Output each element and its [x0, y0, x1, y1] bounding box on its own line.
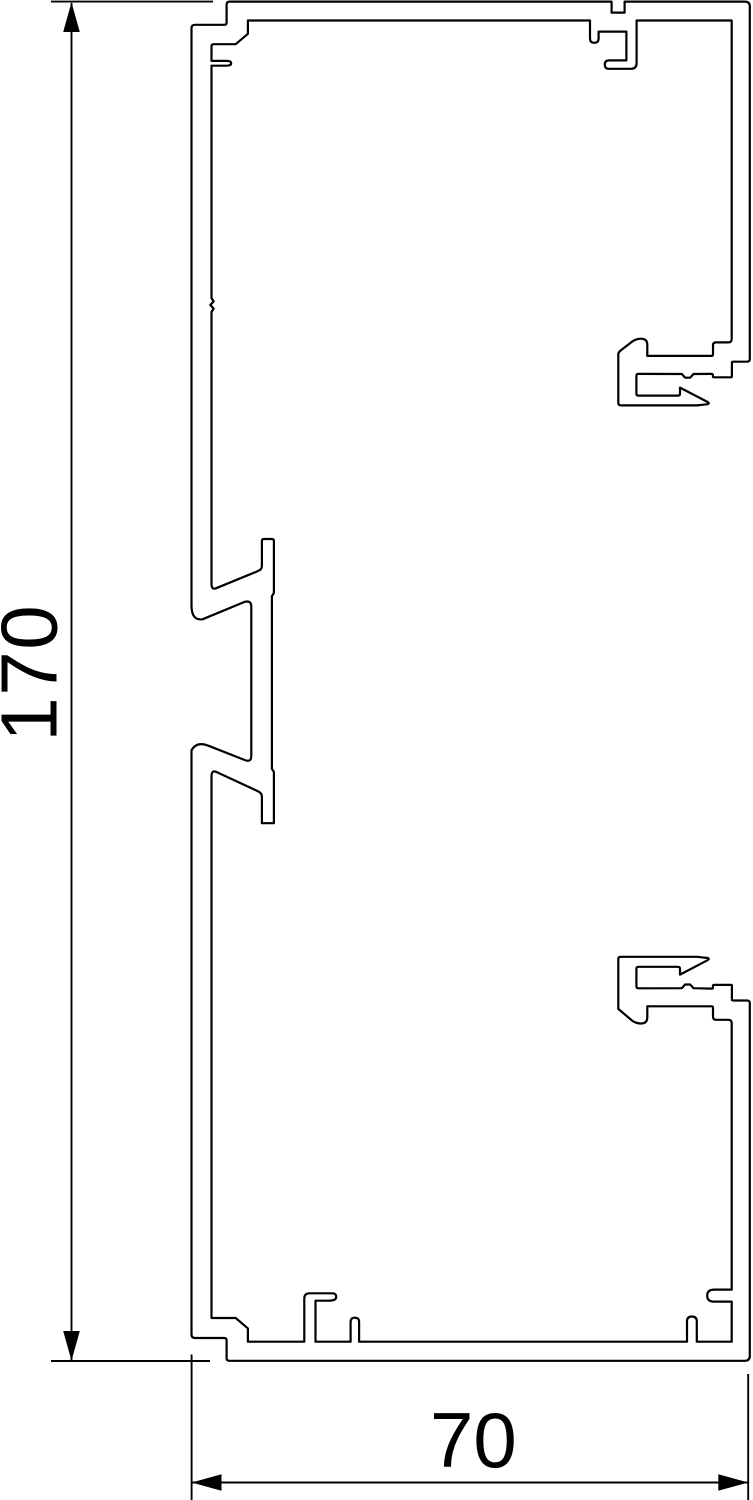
svg-text:170: 170 [0, 604, 74, 742]
svg-text:70: 70 [430, 1396, 517, 1484]
